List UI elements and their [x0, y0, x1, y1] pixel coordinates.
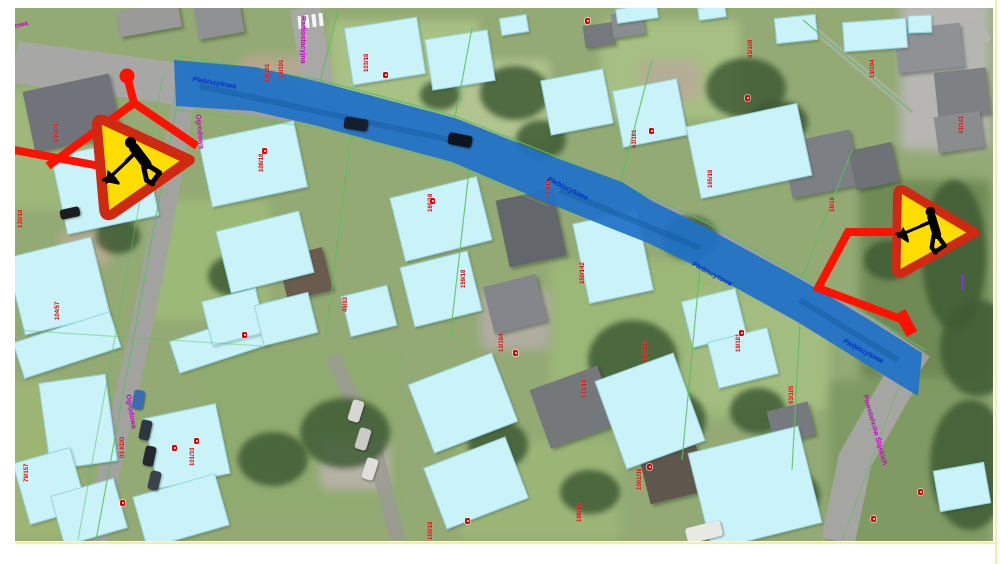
- detour-arrows-layer: [15, 8, 993, 541]
- frame-line-right: [995, 0, 997, 564]
- aerial-map-canvas: 19/19118/191103/1819/103130/18108/1802 K…: [15, 8, 993, 541]
- map-viewport: 19/19118/191103/1819/103130/18108/1802 K…: [0, 0, 1000, 564]
- roadworks-sign-svg: [87, 104, 200, 225]
- roadworks-sign-left[interactable]: [87, 104, 200, 225]
- roadworks-sign-right[interactable]: [888, 182, 982, 282]
- frame-line-bottom: [15, 542, 998, 544]
- roadworks-sign-svg: [888, 182, 982, 282]
- aerial-map[interactable]: 19/19118/191103/1819/103130/18108/1802 K…: [15, 8, 993, 541]
